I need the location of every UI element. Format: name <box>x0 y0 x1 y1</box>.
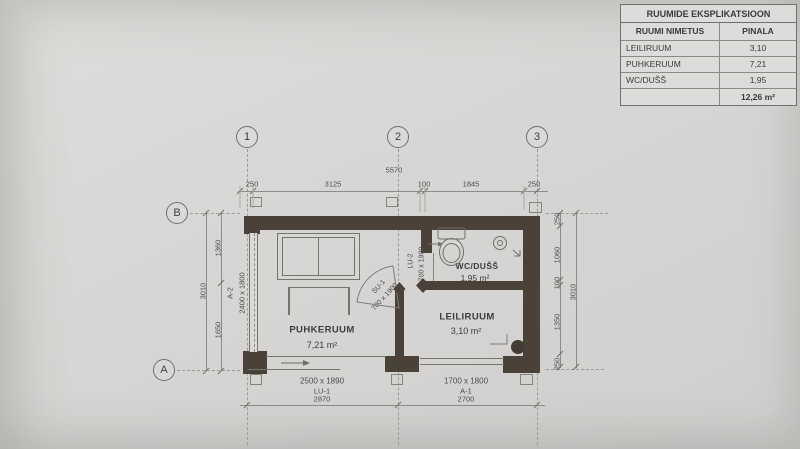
schedule-row-area: 3,10 <box>720 41 796 56</box>
dim-bottom-span-right: 2700 <box>458 395 475 404</box>
room-leiliruum-area: 3,10 m² <box>451 326 482 336</box>
pier-bottom-2 <box>391 374 403 385</box>
dim-bottom-span-left: 2870 <box>314 395 331 404</box>
room-leiliruum-label: LEILIRUUM <box>439 312 494 323</box>
schedule-title: RUUMIDE EKSPLIKATSIOON <box>621 5 796 23</box>
grid-bubble-1: 1 <box>236 126 258 148</box>
dim-right-overall: 3010 <box>569 284 578 301</box>
dim-left-seg-2: 1650 <box>214 322 223 339</box>
table-outline <box>288 287 350 315</box>
schedule-row-wc: WC/DUŠŠ 1,95 <box>621 73 796 89</box>
schedule-header-area: PINALA <box>720 23 796 40</box>
grid-line-B-left <box>190 213 240 214</box>
toilet-icon <box>438 228 465 266</box>
grid-line-A-left <box>177 370 240 371</box>
dim-line-left-segments <box>221 213 222 371</box>
sliding-door-arrow <box>281 360 310 366</box>
floor-drain-icon <box>494 237 507 250</box>
room-schedule-table: RUUMIDE EKSPLIKATSIOON RUUMI NIMETUS PIN… <box>620 4 797 106</box>
sauna-heater-icon <box>490 334 525 354</box>
grid-bubble-3: 3 <box>526 126 548 148</box>
door-lu2-size: 700 x 1900 <box>419 247 426 282</box>
dim-top-seg-3: 100 <box>418 180 431 189</box>
dim-line-right-segments <box>560 213 561 368</box>
schedule-header-name: RUUMI NIMETUS <box>621 23 720 40</box>
grid-bubble-A-label: A <box>160 364 167 376</box>
schedule-header-row: RUUMI NIMETUS PINALA <box>621 23 796 41</box>
door-lu2-code: LU-2 <box>408 253 415 268</box>
window-left-a2 <box>249 233 258 352</box>
dim-top-seg-2: 3125 <box>325 180 342 189</box>
shower-fixture-icon <box>513 250 520 256</box>
grid-bubble-2-label: 2 <box>395 131 401 143</box>
pier-top-2 <box>386 197 398 207</box>
pier-bottom-3 <box>520 374 533 385</box>
grid-bubble-1-label: 1 <box>244 131 250 143</box>
dim-right-seg-2: 1060 <box>553 247 562 264</box>
schedule-row-leiliruum: LEILIRUUM 3,10 <box>621 41 796 57</box>
grid-bubble-B-label: B <box>173 207 180 219</box>
schedule-row-area: 7,21 <box>720 57 796 72</box>
opening-lu1-leaf <box>248 369 340 370</box>
opening-lu1-size: 2500 x 1890 <box>300 377 344 386</box>
schedule-row-name: PUHKERUUM <box>621 57 720 72</box>
room-puhkeruum-area: 7,21 m² <box>307 340 338 350</box>
floor-plan-sheet: 1 2 3 B A 5570 250 3125 100 1845 250 136… <box>0 0 800 449</box>
schedule-row-name: WC/DUŠŠ <box>621 73 720 88</box>
room-wc-area: 1,95 m² <box>461 273 490 283</box>
pier-top-3 <box>529 202 542 213</box>
room-puhkeruum-label: PUHKERUUM <box>289 325 354 336</box>
room-wc-label: WC/DUŠŠ <box>456 261 499 271</box>
dim-right-seg-5: 250 <box>553 358 562 371</box>
wall-left-top-block <box>244 216 260 234</box>
dim-line-top <box>238 191 548 192</box>
schedule-total-row: 12,26 m² <box>621 89 796 105</box>
dim-top-seg-4: 1845 <box>463 180 480 189</box>
dim-top-seg-1: 250 <box>246 180 259 189</box>
grid-bubble-B: B <box>166 202 188 224</box>
dim-right-seg-3: 100 <box>553 277 562 290</box>
dim-left-overall: 3010 <box>199 283 208 300</box>
window-bottom-a1 <box>420 358 504 365</box>
schedule-total-area: 12,26 m² <box>720 89 796 105</box>
dim-top-overall: 5570 <box>386 166 403 175</box>
schedule-row-name: LEILIRUUM <box>621 41 720 56</box>
dim-right-seg-4: 1350 <box>553 314 562 331</box>
schedule-row-puhkeruum: PUHKERUUM 7,21 <box>621 57 796 73</box>
opening-lu1-edge <box>266 356 386 357</box>
wall-top <box>250 216 537 230</box>
extension-lines <box>240 186 524 212</box>
opening-a1-size: 1700 x 1800 <box>444 377 488 386</box>
wall-partition-grid2 <box>395 290 404 356</box>
grid-bubble-2: 2 <box>387 126 409 148</box>
dim-top-seg-5: 250 <box>528 180 541 189</box>
window-left-size: 2400 x 1800 <box>238 272 247 313</box>
schedule-total-empty-cell <box>621 89 720 105</box>
wall-left-bottom-block <box>243 351 267 374</box>
dim-line-bottom <box>240 405 545 406</box>
grid-line-1 <box>247 149 248 445</box>
grid-bubble-A: A <box>153 359 175 381</box>
grid-bubble-3-label: 3 <box>534 131 540 143</box>
door-lu2-leaf <box>433 253 434 281</box>
bed-center-line <box>318 237 319 276</box>
footing-grid2 <box>385 356 419 372</box>
dim-right-seg-1: 250 <box>553 213 562 226</box>
wall-bottom-right-block <box>503 356 540 373</box>
schedule-row-area: 1,95 <box>720 73 796 88</box>
pier-bottom-1 <box>250 374 262 385</box>
window-left-code: A-2 <box>226 287 235 299</box>
pier-top-1 <box>250 197 262 207</box>
dim-left-seg-1: 1360 <box>214 240 223 257</box>
